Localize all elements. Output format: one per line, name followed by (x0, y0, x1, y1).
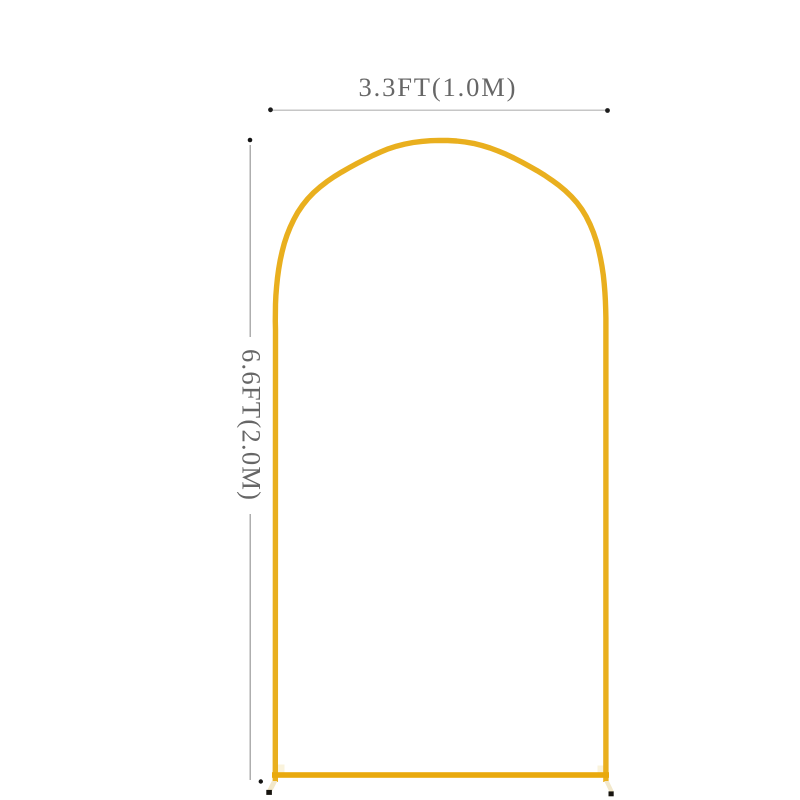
svg-text:3.3FT(1.0M): 3.3FT(1.0M) (359, 72, 516, 102)
svg-text:6.6FT(2.0M): 6.6FT(2.0M) (236, 349, 266, 500)
